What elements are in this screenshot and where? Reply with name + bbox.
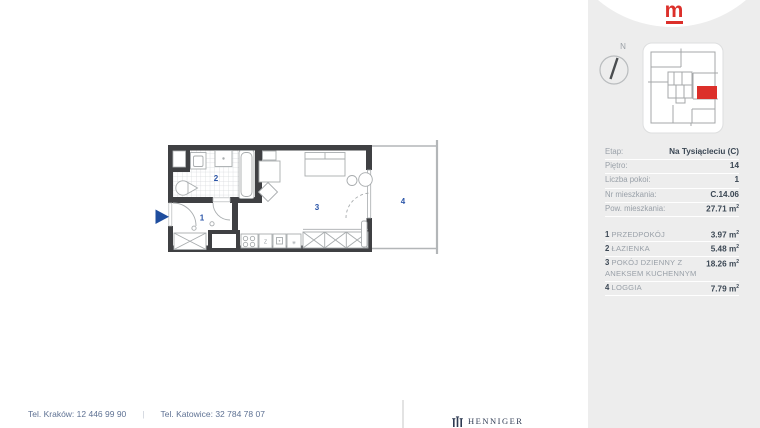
- room-label-2: 2: [214, 174, 219, 183]
- compass-needle-icon: [611, 58, 618, 79]
- detail-label: Piętro:: [605, 161, 628, 170]
- partner-crest-icon: [452, 416, 463, 428]
- desk-chair: [263, 151, 277, 160]
- footer-divider-line: [402, 400, 404, 428]
- phone-divider: |: [142, 409, 144, 419]
- wall-niche: [173, 151, 186, 167]
- apartment-card-page: Z ✳ 1 2 3 4 m: [0, 0, 760, 428]
- room-list: 1PRZEDPOKÓJ 3.97 m2 2ŁAZIENKA 5.48 m2 3P…: [605, 228, 739, 296]
- room-row-przedpokoj: 1PRZEDPOKÓJ 3.97 m2: [605, 228, 739, 242]
- brand-logo[interactable]: m: [588, 1, 760, 24]
- phone-krakow: Tel. Kraków: 12 446 99 90: [28, 409, 126, 419]
- round-table: [359, 173, 373, 187]
- detail-value: 27.71 m2: [706, 204, 739, 214]
- detail-value: C.14.06: [710, 190, 739, 199]
- room-row-lazienka: 2ŁAZIENKA 5.48 m2: [605, 242, 739, 256]
- detail-row-pietro: Piętro: 14: [605, 160, 739, 174]
- detail-row-numer: Nr mieszkania: C.14.06: [605, 189, 739, 203]
- kitchen-sink-label: Z: [264, 240, 267, 246]
- detail-label: Etap:: [605, 147, 623, 156]
- room-label-4: 4: [401, 197, 406, 206]
- kitchen-vent-symbol: ✳: [292, 241, 296, 247]
- tall-cabinet: [362, 221, 368, 247]
- entrance-arrow-icon: [156, 210, 170, 225]
- floorplan-drawing: Z ✳ 1 2 3 4: [150, 135, 442, 257]
- installation-shaft: [210, 232, 238, 250]
- brand-letter: m: [665, 0, 684, 22]
- building-minimap: [643, 43, 723, 133]
- partner-name: HENNIGER: [468, 416, 523, 426]
- unit-location-highlight: [697, 86, 717, 99]
- sidebar: m N: [588, 0, 760, 428]
- detail-label: Nr mieszkania:: [605, 190, 657, 199]
- detail-value: 1: [734, 175, 739, 184]
- living-furniture: [259, 151, 373, 202]
- apartment-details: Etap: Na Tysiącleciu (C) Piętro: 14 Licz…: [605, 146, 739, 217]
- room-name: 3POKÓJ DZIENNY Z ANEKSEM KUCHENNYM: [605, 258, 701, 280]
- detail-value: Na Tysiącleciu (C): [669, 147, 739, 156]
- room-area: 5.48 m2: [711, 244, 739, 254]
- room-name: 4LOGGIA: [605, 283, 642, 294]
- room-label-1: 1: [200, 214, 205, 223]
- detail-row-etap: Etap: Na Tysiącleciu (C): [605, 146, 739, 160]
- entrance-door: [169, 203, 172, 226]
- partner-logo: HENNIGER: [452, 416, 523, 428]
- detail-label: Liczba pokoi:: [605, 175, 651, 184]
- room-label-3: 3: [315, 203, 320, 212]
- footer-contact: Tel. Kraków: 12 446 99 90 | Tel. Katowic…: [28, 409, 265, 419]
- room-row-pokoj-dzienny: 3POKÓJ DZIENNY Z ANEKSEM KUCHENNYM 18.26…: [605, 257, 739, 282]
- room-name: 2ŁAZIENKA: [605, 244, 650, 255]
- table-chair: [347, 176, 357, 186]
- detail-row-powierzchnia: Pow. mieszkania: 27.71 m2: [605, 203, 739, 217]
- detail-value: 14: [730, 161, 739, 170]
- detail-row-pokoje: Liczba pokoi: 1: [605, 174, 739, 188]
- room-area: 3.97 m2: [711, 230, 739, 240]
- room-name: 1PRZEDPOKÓJ: [605, 230, 665, 241]
- bathroom-door: [213, 198, 230, 202]
- compass-north-label: N: [620, 42, 626, 51]
- location-panel: N: [588, 35, 760, 135]
- detail-label: Pow. mieszkania:: [605, 204, 665, 213]
- room-area: 7.79 m2: [711, 284, 739, 294]
- compass: N: [600, 42, 628, 84]
- room-area: 18.26 m2: [706, 259, 739, 269]
- desk: [259, 161, 280, 182]
- phone-katowice: Tel. Katowice: 32 784 78 07: [161, 409, 265, 419]
- room-row-loggia: 4LOGGIA 7.79 m2: [605, 282, 739, 296]
